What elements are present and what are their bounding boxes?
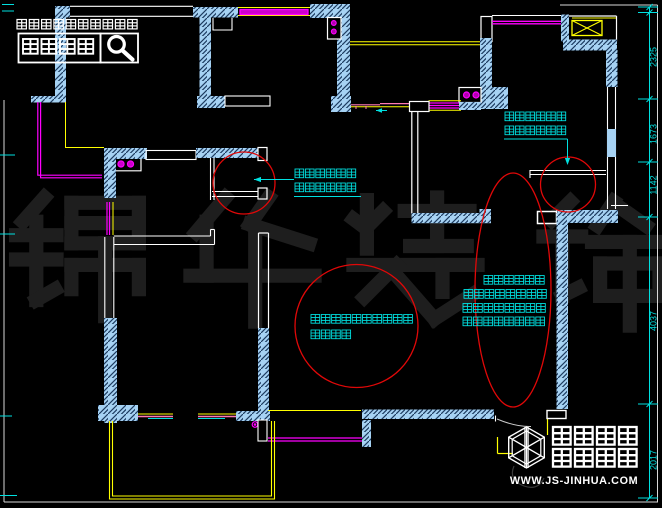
svg-text:4037: 4037	[649, 311, 659, 331]
svg-text:1673: 1673	[649, 124, 659, 144]
svg-text:2017: 2017	[649, 450, 659, 470]
svg-text:1142: 1142	[649, 175, 659, 194]
svg-text:WWW.JS-JINHUA.COM: WWW.JS-JINHUA.COM	[510, 475, 638, 487]
svg-text:2325: 2325	[649, 47, 659, 67]
